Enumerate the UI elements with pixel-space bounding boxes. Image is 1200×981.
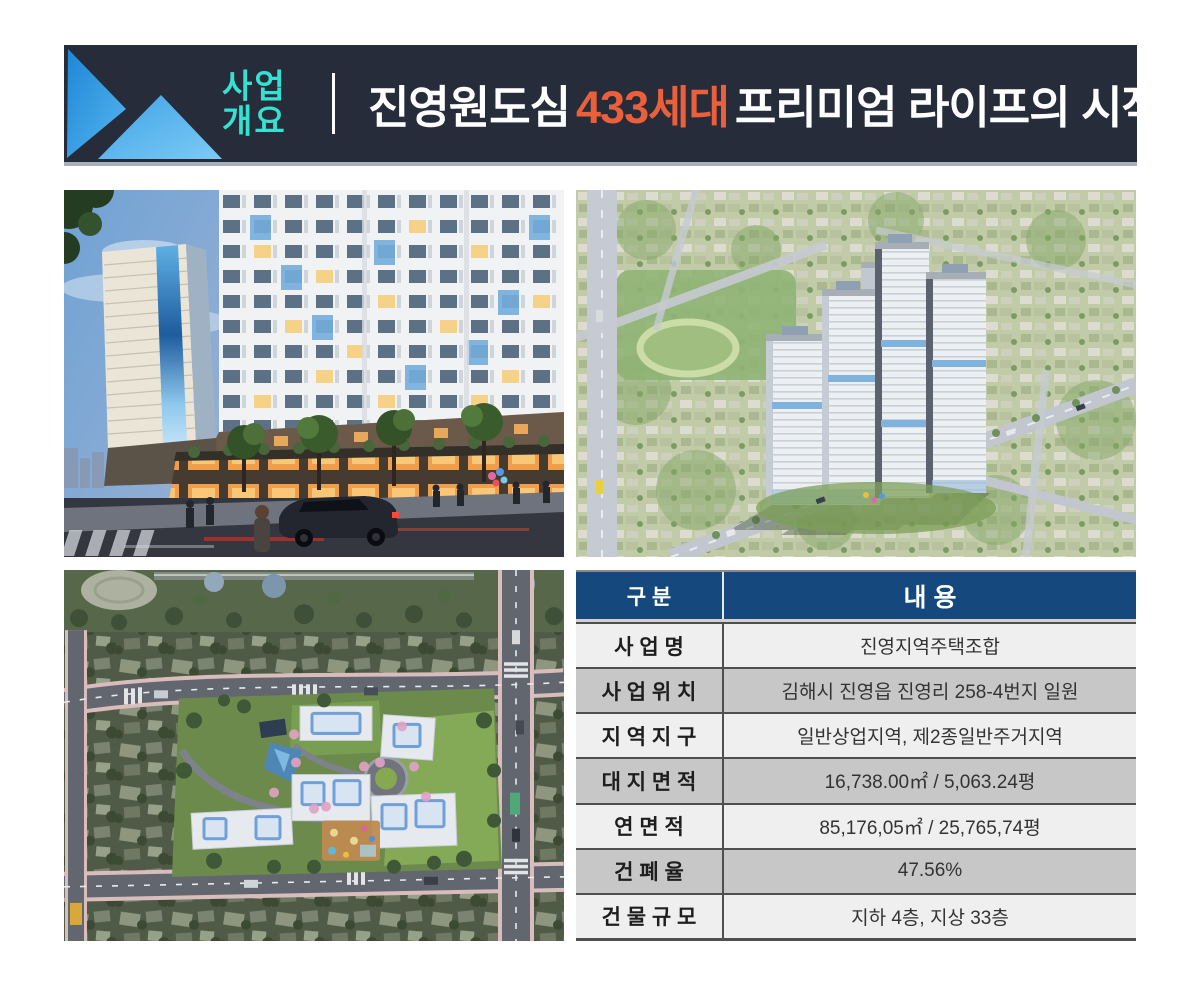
section-badge: 사업 개요 — [222, 68, 287, 139]
table-row-zoning: 지 역 지 구 일반상업지역, 제2종일반주거지역 — [576, 712, 1136, 757]
page-title: 진영원도심 433세대 프리미엄 라이프의 시작! — [368, 45, 1176, 162]
table-header-content: 내 용 — [724, 572, 1136, 619]
title-highlight: 433세대 — [570, 71, 735, 136]
project-spec-table: 구 분 내 용 사 업 명 진영지역주택조합 사 업 위 치 김해시 진영읍 진… — [576, 570, 1136, 941]
street-view-render-image — [64, 190, 564, 557]
x-logo-icon — [64, 45, 234, 162]
table-row-project-name: 사 업 명 진영지역주택조합 — [576, 622, 1136, 667]
table-header-category: 구 분 — [576, 572, 724, 619]
title-pre: 진영원도심 — [368, 71, 570, 136]
table-row-coverage-ratio: 건 폐 율 47.56% — [576, 848, 1136, 893]
table-row-site-area: 대 지 면 적 16,738.00㎡ / 5,063.24평 — [576, 757, 1136, 802]
vertical-divider — [332, 73, 335, 134]
site-plan-render-image — [64, 570, 564, 941]
table-row-floor-area: 연 면 적 85,176,05㎡ / 25,765,74평 — [576, 803, 1136, 848]
header-banner: 사업 개요 진영원도심 433세대 프리미엄 라이프의 시작! — [64, 45, 1137, 166]
table-row-building-scale: 건 물 규 모 지하 4층, 지상 33층 — [576, 893, 1136, 938]
table-row-location: 사 업 위 치 김해시 진영읍 진영리 258-4번지 일원 — [576, 667, 1136, 712]
flyer-page: 사업 개요 진영원도심 433세대 프리미엄 라이프의 시작! — [0, 0, 1200, 981]
title-post: 프리미엄 라이프의 시작! — [735, 71, 1176, 136]
table-header-row: 구 분 내 용 — [576, 572, 1136, 622]
aerial-view-render-image — [576, 190, 1136, 557]
section-badge-line1: 사업 — [222, 68, 287, 104]
section-badge-line2: 개요 — [222, 104, 287, 140]
